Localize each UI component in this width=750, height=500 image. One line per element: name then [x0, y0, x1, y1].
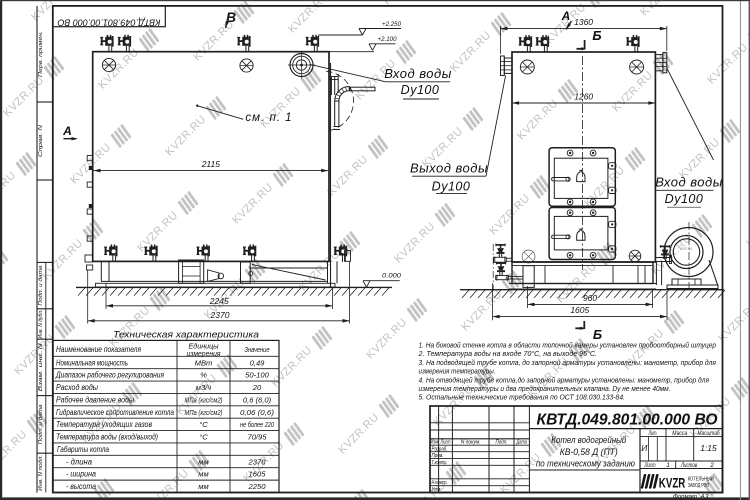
svg-text:КВ-0,58 Д (ПТ): КВ-0,58 Д (ПТ)	[560, 447, 618, 457]
svg-text:Масса: Масса	[672, 431, 688, 437]
svg-text:Гидравлическое сопротивление к: Гидравлическое сопротивление котла	[56, 408, 174, 417]
svg-text:Техническая характеристика: Техническая характеристика	[113, 330, 259, 340]
svg-text:см. п. 1: см. п. 1	[245, 112, 292, 124]
svg-text:Габариты котла: Габариты котла	[57, 445, 109, 454]
svg-text:Формат: Формат	[673, 494, 697, 500]
svg-text:Вход воды: Вход воды	[384, 66, 452, 81]
svg-text:Справ. N: Справ. N	[38, 124, 44, 157]
svg-text:0.000: 0.000	[382, 273, 401, 280]
svg-text:МПа (кгс/см2): МПа (кгс/см2)	[185, 408, 223, 417]
svg-text:4. На отводящей трубе котла,д: 4. На отводящей трубе котла,до запорной …	[419, 375, 710, 384]
svg-text:Подп. и дата: Подп. и дата	[38, 404, 44, 445]
svg-text:960: 960	[583, 293, 597, 303]
svg-text:+2.250: +2.250	[382, 21, 401, 28]
svg-text:Номинальная мощность: Номинальная мощность	[56, 358, 128, 367]
svg-text:1605: 1605	[570, 305, 589, 315]
svg-text:Дата: Дата	[516, 439, 527, 445]
svg-text:- высота: - высота	[66, 482, 96, 491]
svg-text:°С: °С	[199, 420, 208, 429]
svg-text:МВт: МВт	[195, 358, 213, 367]
svg-text:5. Остальные технические треб: 5. Остальные технические требования по О…	[419, 393, 626, 402]
svg-text:Dy100: Dy100	[401, 83, 440, 97]
svg-text:2370: 2370	[210, 310, 230, 320]
svg-text:И: И	[641, 443, 648, 453]
svg-text:Масштаб: Масштаб	[698, 431, 720, 437]
svg-text:Температура воды (вход/выход): Температура воды (вход/выход)	[56, 433, 158, 442]
svg-text:Температура уходящих газов: Температура уходящих газов	[56, 420, 152, 429]
svg-text:2115: 2115	[201, 159, 221, 169]
svg-text:измерения: измерения	[187, 349, 221, 358]
svg-text:КОТЕЛЬНЫЙ: КОТЕЛЬНЫЙ	[688, 475, 714, 483]
svg-text:2: 2	[709, 462, 714, 469]
svg-text:2. Температура воды на входе: 2. Температура воды на входе 70°С, на вы…	[418, 349, 597, 358]
svg-text:1. На боковой стенке котла в: 1. На боковой стенке котла в области топ…	[419, 340, 717, 349]
svg-text:Рабочее давление воды: Рабочее давление воды	[56, 395, 134, 404]
svg-text:Инв. N дубл.: Инв. N дубл.	[38, 310, 44, 339]
svg-text:20: 20	[252, 383, 262, 392]
svg-text:Изм: Изм	[431, 439, 439, 445]
svg-text:Разраб.: Разраб.	[432, 446, 448, 452]
svg-text:Пров.: Пров.	[432, 453, 444, 459]
svg-text:Диапазон рабочего регулировани: Диапазон рабочего регулирования	[55, 371, 164, 380]
svg-text:А: А	[561, 9, 571, 23]
svg-text:мм: мм	[198, 482, 209, 491]
svg-text:N докум.: N докум.	[461, 439, 481, 445]
svg-text:Инв. N подл.: Инв. N подл.	[38, 455, 44, 491]
svg-text:Подп.: Подп.	[496, 439, 508, 445]
svg-text:2250: 2250	[248, 482, 267, 491]
svg-text:2370: 2370	[248, 457, 267, 466]
svg-text:0,06 (0,6): 0,06 (0,6)	[240, 408, 274, 417]
svg-text:по техническому заданию: по техническому заданию	[536, 459, 635, 469]
svg-text:0,49: 0,49	[250, 358, 266, 367]
svg-text:КВТД.049.801.00.000 ВО: КВТД.049.801.00.000 ВО	[537, 412, 719, 429]
svg-text:50-100: 50-100	[245, 371, 269, 380]
svg-text:мм: мм	[198, 470, 209, 479]
svg-text:1260: 1260	[574, 92, 593, 102]
svg-text:Выход воды: Выход воды	[410, 161, 488, 176]
svg-text:не более 220: не более 220	[240, 420, 275, 429]
svg-text:измерения температуры.: измерения температуры.	[419, 367, 496, 376]
svg-text:0,6 (6,0): 0,6 (6,0)	[243, 395, 272, 404]
svg-text:70/95: 70/95	[247, 433, 267, 442]
svg-text:Расход воды: Расход воды	[56, 383, 98, 392]
svg-text:+2.100: +2.100	[378, 36, 397, 43]
svg-text:KVZR: KVZR	[659, 475, 686, 491]
svg-text:измерения температуры и два пр: измерения температуры и два предохраните…	[419, 384, 671, 393]
svg-text:А3: А3	[699, 494, 709, 500]
svg-text:Перв. примен.: Перв. примен.	[38, 31, 44, 77]
svg-text:Лист: Лист	[440, 439, 451, 445]
svg-text:- длина: - длина	[66, 457, 93, 466]
svg-text:мм: мм	[198, 457, 209, 466]
svg-text:%: %	[200, 371, 207, 380]
svg-text:Dy100: Dy100	[665, 192, 704, 206]
svg-text:Котел водогрейный: Котел водогрейный	[551, 435, 626, 445]
svg-text:МПа (кгс/см2): МПа (кгс/см2)	[185, 395, 223, 404]
svg-text:Подп. и дата: Подп. и дата	[38, 265, 44, 306]
svg-text:2245: 2245	[209, 296, 229, 306]
svg-text:Утв.: Утв.	[431, 487, 442, 493]
svg-text:- ширина: - ширина	[66, 470, 96, 479]
svg-text:Б: Б	[592, 28, 601, 43]
svg-text:°С: °С	[199, 433, 208, 442]
svg-text:КВЗР-34: КВЗР-34	[680, 247, 693, 251]
svg-text:А: А	[62, 124, 72, 138]
svg-text:Н.контр.: Н.контр.	[432, 480, 448, 486]
svg-text:1:15: 1:15	[700, 443, 717, 453]
svg-text:Взам. инв. N: Взам. инв. N	[38, 342, 44, 391]
svg-text:Т.контр.: Т.контр.	[432, 460, 448, 466]
svg-text:1360: 1360	[574, 17, 593, 27]
svg-text:Лит.: Лит.	[648, 431, 658, 437]
svg-text:1: 1	[666, 462, 670, 469]
svg-text:Значение: Значение	[245, 345, 270, 354]
svg-text:Наименование показателя: Наименование показателя	[56, 345, 142, 354]
svg-text:КВТД.049.801.00.000 ВО: КВТД.049.801.00.000 ВО	[58, 17, 161, 27]
svg-text:м3/ч: м3/ч	[196, 383, 212, 392]
svg-text:1605: 1605	[249, 470, 267, 479]
svg-text:Dy100: Dy100	[432, 180, 471, 194]
svg-text:Вход воды: Вход воды	[655, 175, 723, 190]
svg-text:ЗАВОД РЭП: ЗАВОД РЭП	[688, 483, 710, 489]
